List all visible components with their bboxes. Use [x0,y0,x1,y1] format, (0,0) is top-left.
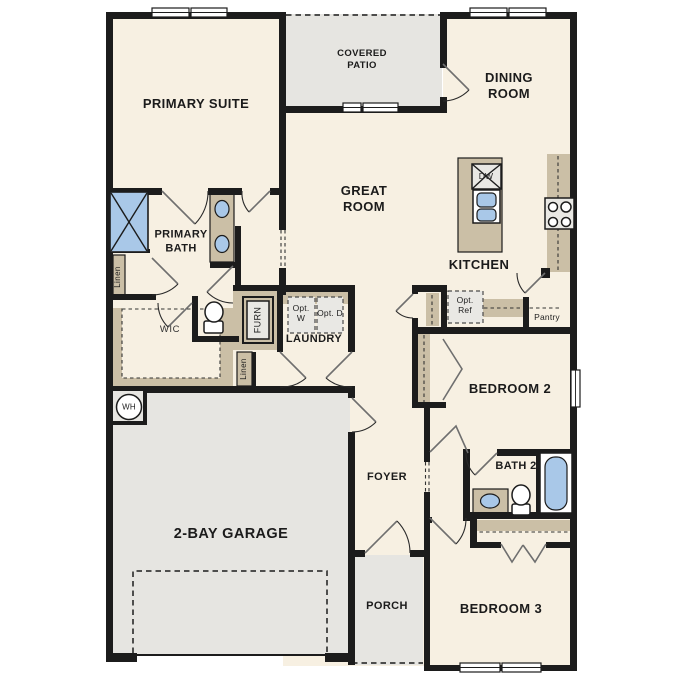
dishwasher-label: DW [479,172,494,182]
opt-washer-label: Opt. W [288,304,314,324]
bath2-toilet-bowl [512,485,530,505]
primary-toilet-tank [204,321,223,333]
laundry-label: LAUNDRY [286,333,342,347]
covered-patio-label: COVERED PATIO [322,48,402,72]
primary-toilet-bowl [205,302,223,322]
porch-label: PORCH [366,600,408,614]
kitchen-label: KITCHEN [449,257,510,273]
water-heater-label: WH [122,402,136,411]
linen-hall-label: Linen [239,358,249,380]
bedroom3-closet-shelf [472,520,573,531]
dining-room-label: DINING ROOM [469,70,549,103]
great-room-label: GREAT ROOM [324,183,404,216]
linen-bath-label: Linen [113,266,123,288]
primary-sink-1 [215,201,229,218]
garage-label: 2-BAY GARAGE [171,525,291,543]
primary-bath-label: PRIMARY BATH [141,228,221,256]
opt-fridge-label: Opt. Ref [450,296,480,316]
foyer-label: FOYER [367,471,407,485]
bedroom3-label: BEDROOM 3 [460,601,542,617]
garage-area [112,391,350,654]
bedroom2-label: BEDROOM 2 [469,381,551,397]
bath2-tub [545,457,567,510]
primary-suite-label: PRIMARY SUITE [141,96,251,112]
wic-label: WIC [160,324,180,336]
bath2-sink [481,494,500,508]
bath2-label: BATH 2 [495,460,536,474]
floorplan-drawing [0,0,687,687]
floor-plan: PRIMARY SUITE COVERED PATIO DINING ROOM … [0,0,687,687]
pantry-label: Pantry [534,313,560,323]
opt-dryer-label: Opt. D [317,309,343,319]
furnace-label: FURN [252,307,263,334]
